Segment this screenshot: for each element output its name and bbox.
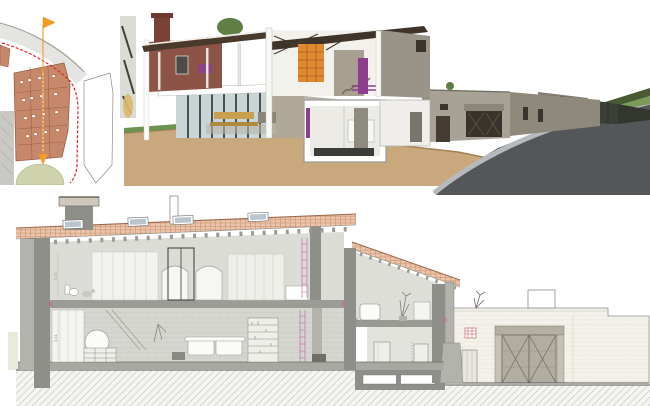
- dresser: [414, 302, 430, 320]
- garden-lawn: [16, 164, 64, 185]
- courtyard-elevation: [445, 290, 649, 383]
- bench: [210, 122, 258, 126]
- ground-slab: [18, 362, 444, 370]
- tree-behind-roof: [217, 18, 243, 36]
- shelf-unit: [84, 348, 116, 362]
- presentation-board: 2.26 2.35: [0, 0, 650, 406]
- dining-table: [214, 112, 254, 119]
- garage-door: [495, 326, 564, 383]
- dim-wing-lower: 2.35: [439, 346, 443, 354]
- garage-door-3d: [466, 111, 502, 137]
- section-panel: 2.26 2.35: [8, 192, 650, 406]
- dim-left-lower: 3.54: [54, 334, 58, 342]
- terracotta-vent: [465, 328, 476, 338]
- plant-sprig: [474, 291, 485, 308]
- side-door-3d: [436, 116, 450, 142]
- garden-beyond: [8, 332, 18, 370]
- render-3d-drawing: [118, 0, 650, 195]
- dim-left-upper: 3.17: [54, 272, 58, 280]
- section-flag-icon: [43, 17, 55, 28]
- bed: [286, 286, 308, 300]
- wing-foundation: [355, 370, 445, 390]
- purple-door-3d: [358, 58, 368, 94]
- court-wall: [380, 100, 430, 146]
- mid-floor-slab: [50, 300, 344, 308]
- cut-wall-edge-mid: [266, 28, 272, 138]
- courtyard-door: [462, 350, 477, 383]
- left-main-wall: [34, 230, 50, 388]
- neighbour-parcel: [84, 73, 113, 183]
- pet-silhouette: [82, 291, 92, 297]
- cut-wall-edge-left: [144, 40, 149, 140]
- cabinet-dark: [172, 352, 185, 360]
- neighbour-roof: [0, 45, 10, 67]
- rooftop-chimney-box: [528, 290, 555, 308]
- wing-floor-slab: [356, 320, 445, 327]
- armchair: [360, 304, 380, 320]
- bench-dark: [314, 148, 374, 156]
- section-drawing: 2.26 2.35: [8, 192, 650, 406]
- step-notch: [312, 354, 326, 362]
- background-building: [120, 16, 136, 118]
- render-3d-panel: [118, 0, 650, 195]
- window-3d: [176, 56, 188, 74]
- right-main-wall: [344, 248, 356, 370]
- building-roofs: [14, 63, 70, 161]
- bookshelf: [248, 318, 278, 362]
- chimney-3d: [154, 16, 170, 43]
- attic-window: [416, 40, 426, 52]
- section-arrow-icon: [39, 154, 48, 165]
- shrub: [446, 82, 454, 90]
- glazed-partition: [228, 254, 284, 300]
- site-plan-drawing: [0, 15, 118, 185]
- cut-room: [304, 96, 386, 162]
- outer-leaf-wall: [20, 236, 34, 370]
- site-plan-panel: [0, 15, 118, 185]
- purple-furniture: [198, 64, 212, 73]
- garage-lintel-3d: [464, 104, 504, 111]
